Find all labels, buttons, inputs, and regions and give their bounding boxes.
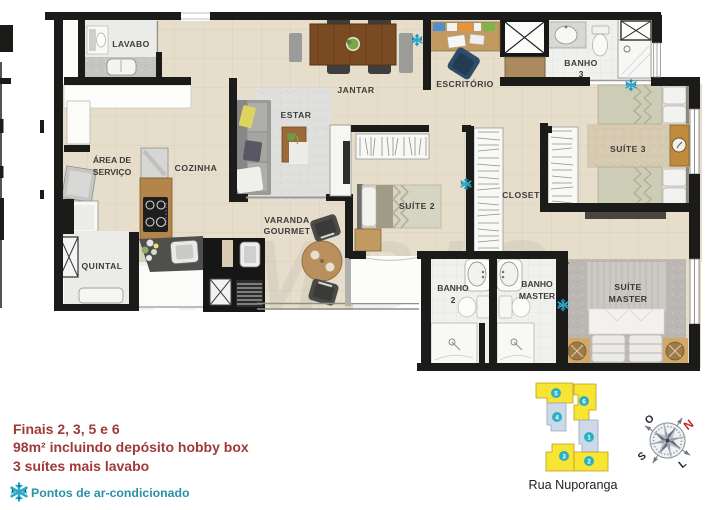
svg-text:ÁREA DE: ÁREA DE	[93, 155, 132, 165]
svg-text:QUINTAL: QUINTAL	[81, 261, 122, 271]
svg-text:BANHO: BANHO	[564, 58, 598, 68]
svg-text:JANTAR: JANTAR	[337, 85, 375, 95]
svg-text:2: 2	[451, 295, 456, 305]
svg-text:3 suítes mais lavabo: 3 suítes mais lavabo	[13, 458, 149, 474]
svg-text:SUÍTE 2: SUÍTE 2	[399, 201, 435, 211]
svg-text:6: 6	[582, 399, 586, 406]
svg-text:MASTER: MASTER	[519, 291, 556, 301]
svg-text:98m² incluindo depósito hobby: 98m² incluindo depósito hobby box	[13, 439, 249, 455]
svg-text:COZINHA: COZINHA	[175, 163, 218, 173]
svg-text:SERVIÇO: SERVIÇO	[93, 167, 132, 177]
svg-text:2: 2	[587, 459, 591, 466]
svg-text:Rua Nuporanga: Rua Nuporanga	[529, 478, 618, 492]
svg-text:SUÍTE: SUÍTE	[614, 282, 641, 292]
svg-text:5: 5	[554, 391, 558, 398]
svg-text:BANHO: BANHO	[521, 279, 553, 289]
svg-text:3: 3	[562, 454, 566, 461]
svg-text:4: 4	[555, 415, 559, 422]
svg-text:Pontos de ar-condicionado: Pontos de ar-condicionado	[31, 486, 190, 500]
svg-text:ESCRITÓRIO: ESCRITÓRIO	[436, 78, 493, 89]
svg-text:SUÍTE 3: SUÍTE 3	[610, 144, 646, 154]
svg-text:GOURMET: GOURMET	[264, 226, 311, 236]
svg-text:Finais 2, 3, 5 e 6: Finais 2, 3, 5 e 6	[13, 421, 120, 437]
svg-text:BANHO: BANHO	[437, 283, 469, 293]
svg-text:1: 1	[587, 435, 591, 442]
svg-text:MASTER: MASTER	[609, 294, 648, 304]
svg-text:LAVABO: LAVABO	[112, 39, 149, 49]
svg-text:CLOSET: CLOSET	[502, 190, 540, 200]
svg-text:VARANDA: VARANDA	[264, 215, 309, 225]
svg-text:ESTAR: ESTAR	[281, 110, 312, 120]
